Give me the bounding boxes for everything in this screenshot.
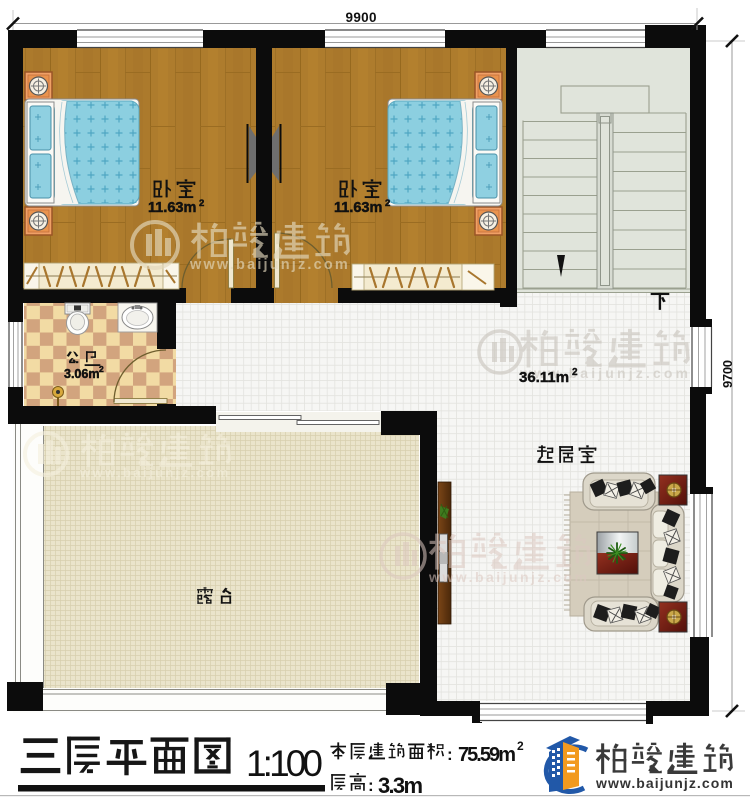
svg-text:11.63m: 11.63m (334, 200, 382, 216)
svg-text:2: 2 (385, 198, 390, 209)
svg-text:1:100: 1:100 (246, 743, 323, 784)
svg-text:3.3m: 3.3m (378, 773, 423, 798)
svg-text::: : (447, 745, 453, 764)
svg-text:36.11m: 36.11m (519, 369, 569, 386)
svg-text:11.63m: 11.63m (148, 200, 196, 216)
svg-text:3.06m: 3.06m (64, 367, 99, 381)
svg-text:www.baijunjz.com: www.baijunjz.com (595, 775, 734, 791)
svg-text:75.59m: 75.59m (458, 744, 516, 766)
svg-text:9900: 9900 (346, 10, 377, 25)
svg-text:2: 2 (517, 739, 524, 753)
svg-text::: : (368, 776, 374, 795)
svg-text:2: 2 (572, 367, 578, 378)
svg-text:www.baijunjz.com: www.baijunjz.com (428, 569, 589, 585)
svg-text:www.baijunjz.com: www.baijunjz.com (189, 257, 350, 273)
svg-text:9700: 9700 (720, 360, 735, 388)
svg-text:2: 2 (199, 198, 204, 209)
svg-text:2: 2 (99, 364, 104, 374)
svg-text:www.baijunjz.com: www.baijunjz.com (79, 465, 230, 480)
